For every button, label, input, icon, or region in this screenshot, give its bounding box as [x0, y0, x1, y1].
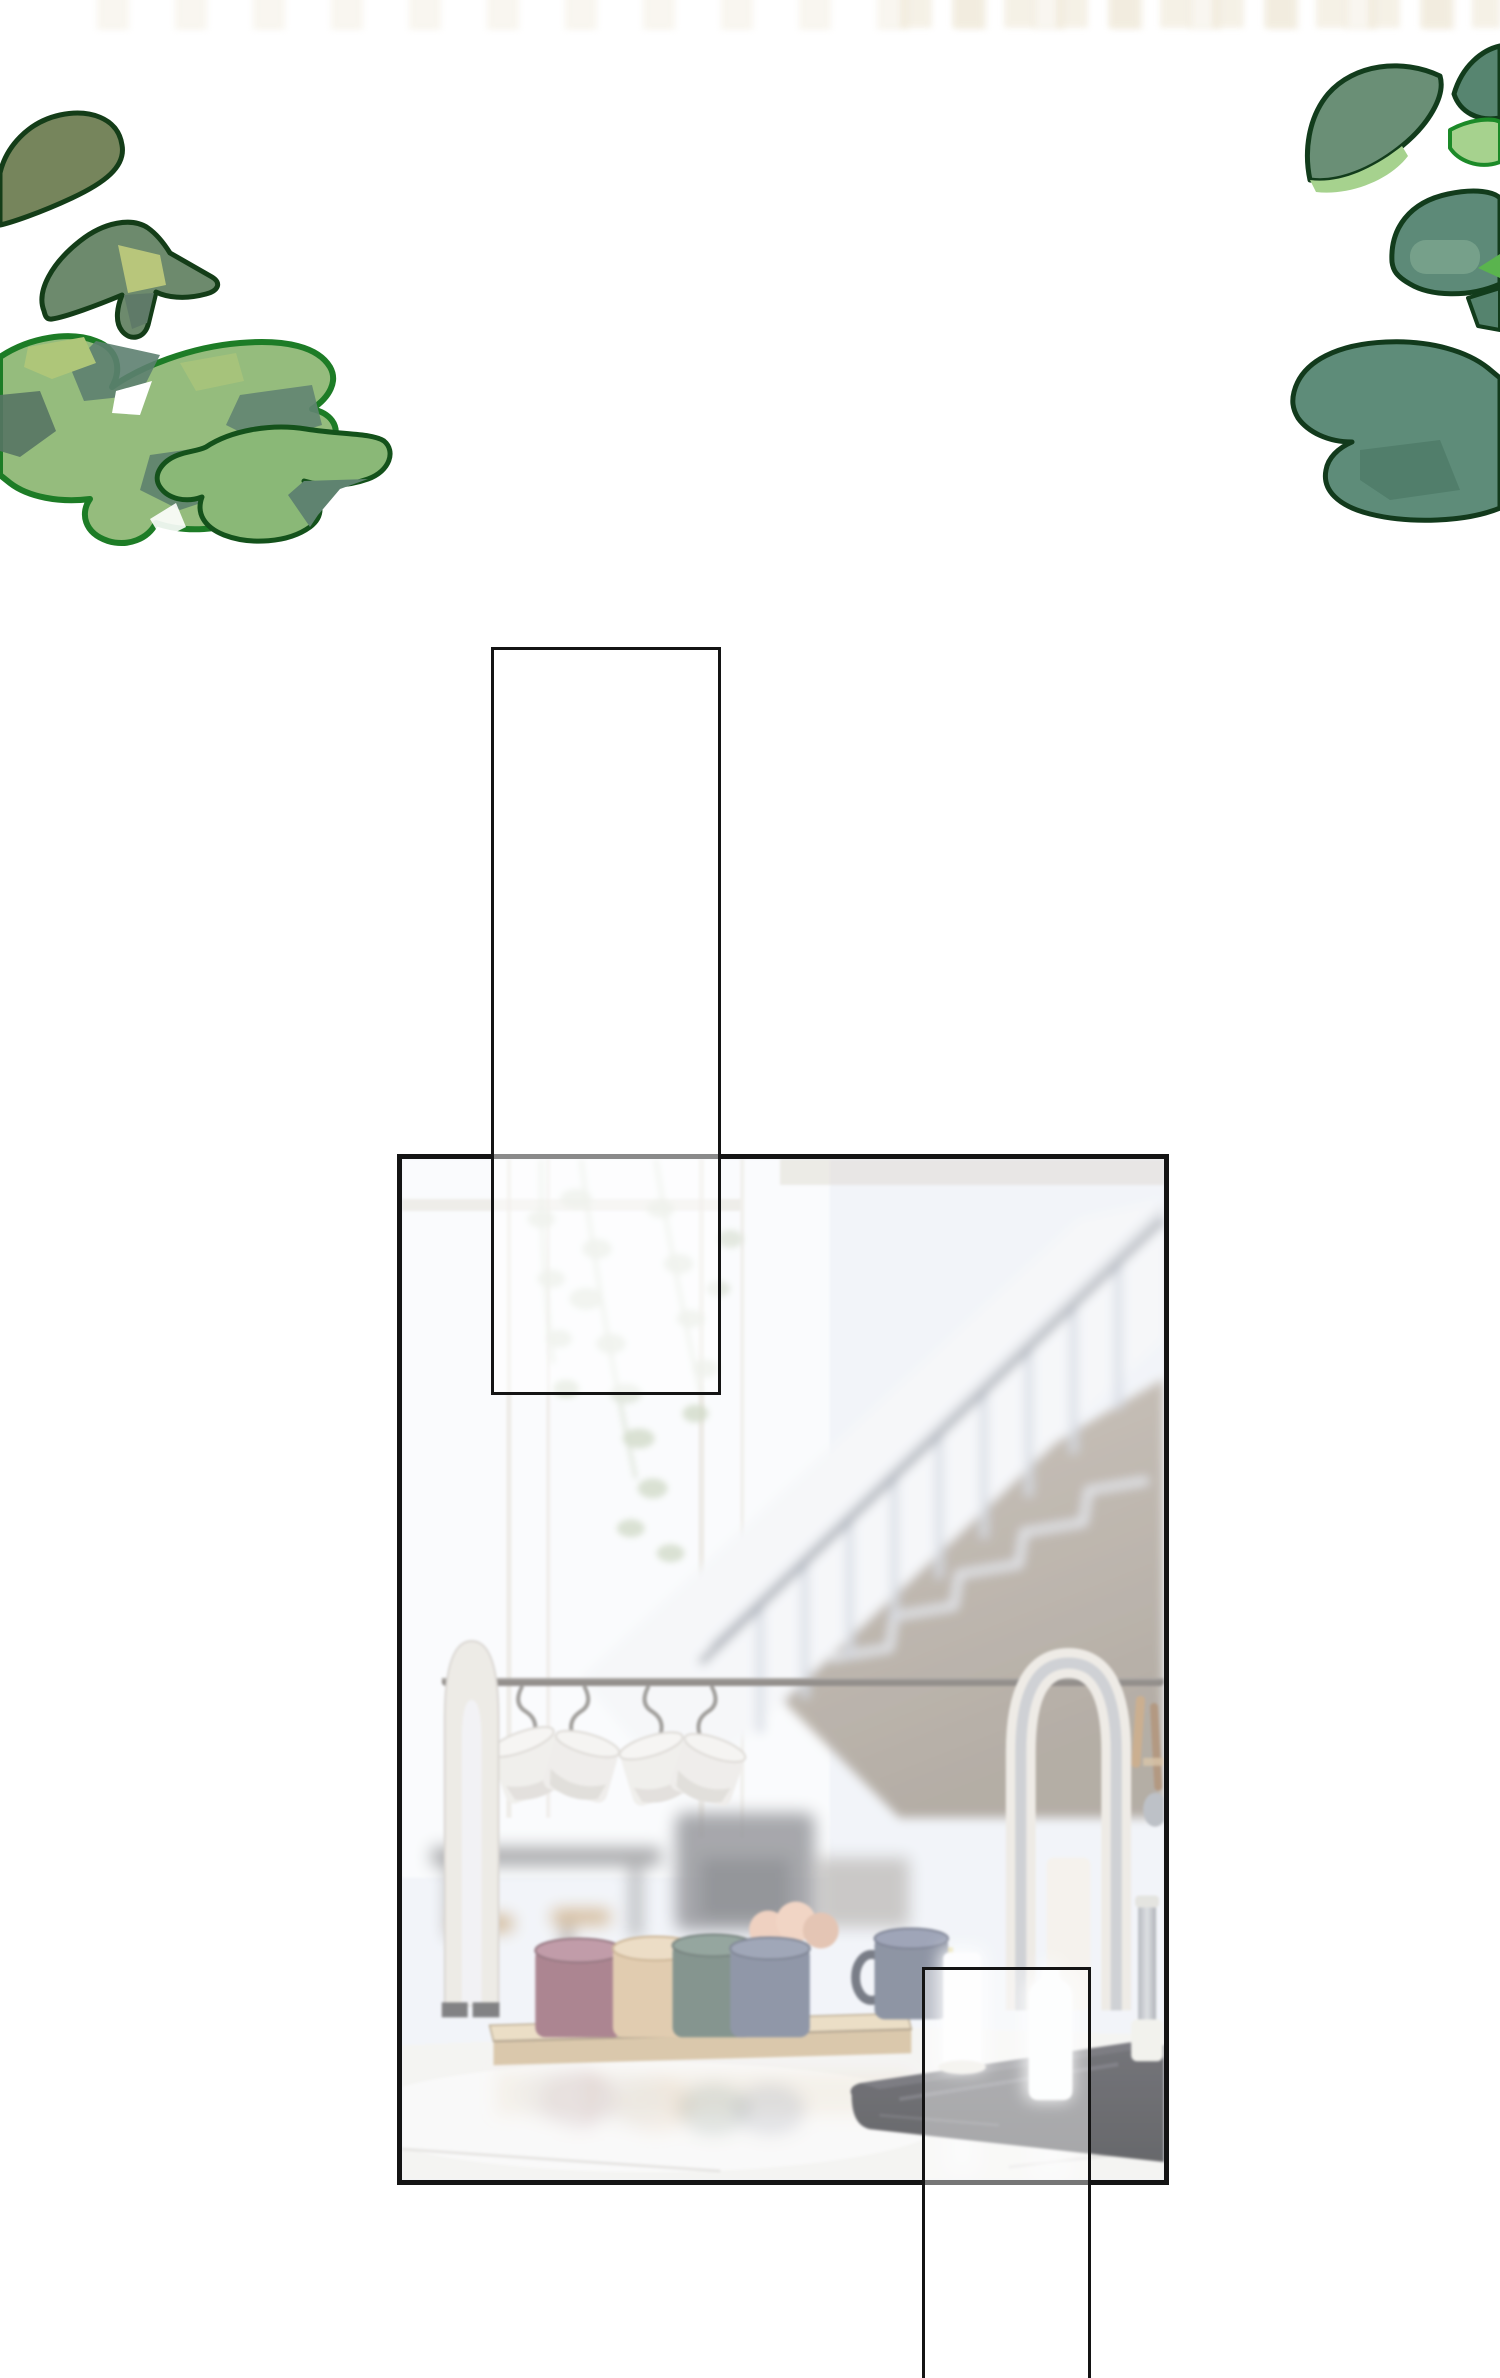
leaf-icon	[1450, 120, 1500, 165]
leaf-icon	[1454, 46, 1500, 119]
top-watermark-band-right	[900, 0, 1500, 28]
leaf-icon	[0, 113, 122, 225]
leaf-cluster-right	[1210, 30, 1500, 550]
leaf-cluster-left	[0, 95, 400, 575]
tall-overlay-rect	[491, 647, 721, 1395]
leaf-icon	[1307, 66, 1441, 181]
comic-page	[0, 0, 1500, 2378]
small-overlay-rect	[922, 1967, 1091, 2378]
